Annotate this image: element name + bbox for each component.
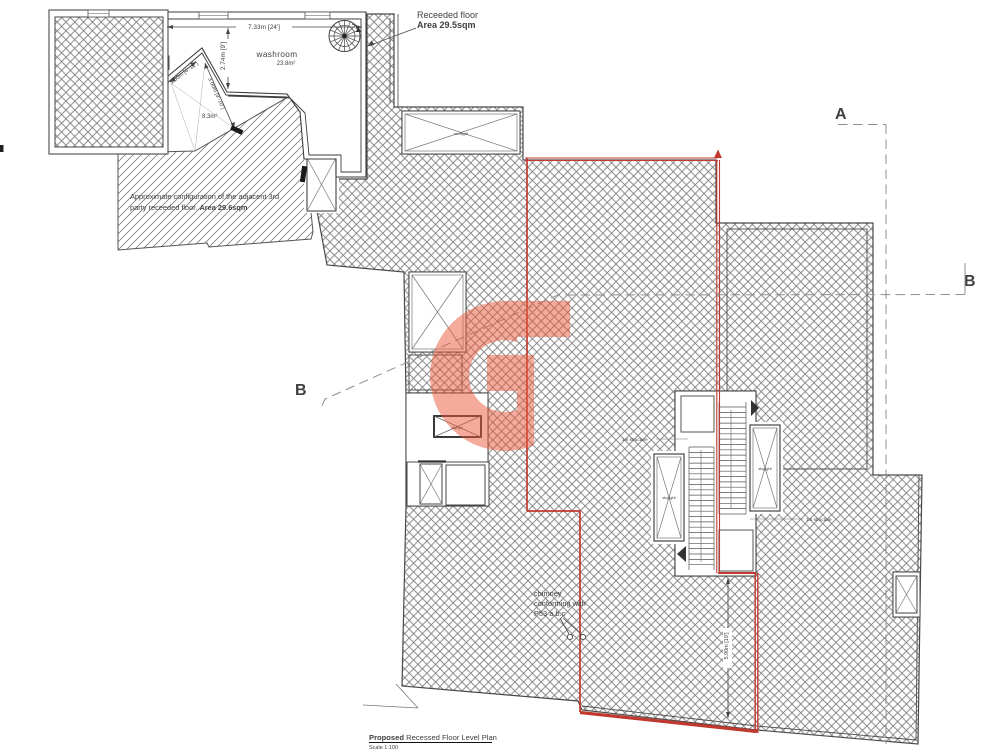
svg-text:Receeded floor: Receeded floor: [417, 10, 478, 20]
svg-text:Proposed Recessed Floor Level: Proposed Recessed Floor Level Plan: [369, 733, 497, 742]
svg-text:skylight: skylight: [758, 466, 772, 471]
svg-text:A: A: [835, 106, 847, 123]
svg-text:skylight: skylight: [662, 495, 676, 500]
svg-text:Approximate configuration of t: Approximate configuration of the adjacen…: [130, 192, 279, 201]
svg-text:1m structure: 1m structure: [806, 517, 832, 522]
svg-text:1m structure: 1m structure: [622, 437, 648, 442]
svg-text:party receeded floor. Area 29.: party receeded floor. Area 29.6sqm: [130, 203, 248, 212]
svg-text:23.8m²: 23.8m²: [277, 61, 296, 67]
svg-text:rooflight: rooflight: [454, 131, 469, 136]
svg-text:washroom: washroom: [256, 50, 298, 59]
svg-text:7.33m [24']: 7.33m [24']: [248, 24, 280, 31]
svg-text:2.74m [9']: 2.74m [9']: [220, 42, 227, 71]
svg-text:chimney: chimney: [534, 589, 562, 598]
svg-text:Scale 1:100: Scale 1:100: [369, 745, 398, 750]
svg-text:5.90m [19']: 5.90m [19']: [724, 632, 730, 660]
svg-text:P53 a.b.c: P53 a.b.c: [534, 609, 566, 618]
svg-text:Area 29.5sqm: Area 29.5sqm: [417, 20, 476, 30]
svg-text:B: B: [964, 273, 976, 290]
svg-text:conforming with: conforming with: [534, 599, 586, 608]
svg-text:B: B: [295, 382, 307, 399]
